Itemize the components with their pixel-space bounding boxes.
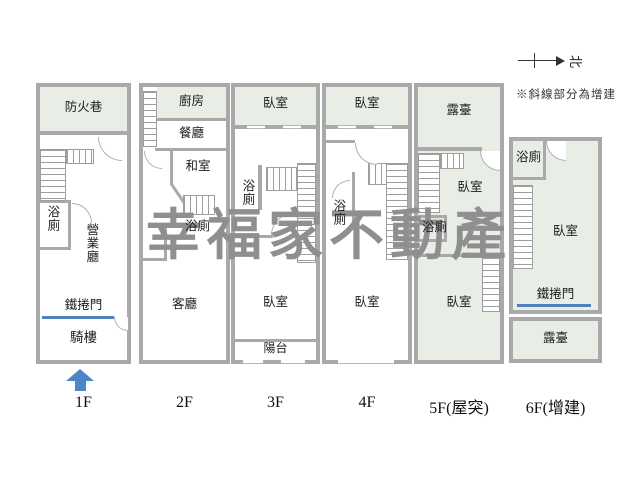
floor-label-1f: 1F [36,394,131,412]
room-label-terrace-6f: 露臺 [513,331,598,345]
room-label-business-hall: 營業廳 [84,223,98,264]
floor-label-3f: 3F [231,394,320,412]
room-label-arcade: 騎樓 [40,330,127,346]
door-arc-icon [332,180,350,198]
stairs-icon [440,153,464,169]
room-label-bedroom-top-3f: 臥室 [235,96,316,110]
wall [326,140,355,143]
room-label-roller-door-6f: 鐵捲門 [513,287,598,301]
wall [68,200,71,250]
stairs-icon [266,167,297,191]
room-label-balcony: 陽台 [235,342,316,356]
room-label-bedroom-6f: 臥室 [533,224,598,238]
room-label-bath-4f: 浴廁 [331,199,345,226]
room-label-terrace-5f: 露臺 [418,103,500,117]
wall [155,148,226,151]
room-label-tatami: 和室 [170,159,226,173]
wall [543,141,546,179]
arrow-stem [75,381,86,391]
door-arc-icon [114,317,128,331]
floorplan-6f: 浴廁 臥室 鐵捲門 [509,137,602,314]
compass-line-icon [518,60,558,61]
wall [157,118,226,121]
room-label-kitchen: 廚房 [157,94,226,108]
balcony-opening [338,356,394,364]
addition-note: ※斜線部分為增建 [516,86,616,102]
sliding-door-gap [374,125,392,129]
room-label-roller-door-1f: 鐵捲門 [40,298,127,312]
door-arc-icon [72,203,92,223]
floor-plan-canvas: 北 ※斜線部分為增建 幸福家不動產 防火巷 浴廁 營業廳 鐵捲門 騎樓 廚房 餐… [0,0,640,480]
balcony-opening [281,356,305,364]
sliding-door-gap [247,125,265,129]
floor-label-2f: 2F [139,394,230,412]
north-arrow-icon [556,56,565,66]
north-label: 北 [567,55,586,68]
room-label-bedroom-5f: 臥室 [418,295,500,309]
agency-watermark: 幸福家不動產 [146,208,512,263]
door-arc-icon [355,143,377,165]
stairs-icon [40,149,66,201]
wall [40,247,70,250]
wall [513,177,546,180]
balcony-opening [243,356,263,364]
room-label-bath-2f: 浴廁 [185,219,210,233]
roller-shutter-line [42,316,114,319]
room-label-dining: 餐廳 [157,126,226,140]
door-arc-icon [480,151,500,171]
entrance-arrow-icon [66,369,94,391]
room-label-bedroom-top-5f: 臥室 [440,180,500,194]
sliding-door-gap [338,125,356,129]
floorplan-1f: 防火巷 浴廁 營業廳 鐵捲門 騎樓 [36,83,131,364]
wall [418,147,482,151]
arrow-head [66,369,94,381]
door-arc-icon [98,137,122,161]
room-label-living: 客廳 [143,297,226,311]
stairs-icon [143,91,157,147]
stairs-icon [513,185,533,269]
floor-label-4f: 4F [322,394,412,412]
room-label-bath-6f: 浴廁 [516,150,541,164]
door-arc-icon [546,141,566,161]
room-label-fire-lane: 防火巷 [40,100,127,114]
floor-label-6f: 6F(增建) [509,394,602,418]
door-arc-icon [144,151,162,169]
wall [40,131,127,135]
room-label-bath-1f: 浴廁 [45,205,59,232]
room-label-bedroom-4f: 臥室 [326,295,408,309]
room-label-bath-5f: 浴廁 [422,220,447,234]
compass: 北 [518,50,594,76]
roller-shutter-line [517,304,591,307]
floor-label-5f: 5F(屋突) [414,394,504,418]
room-label-bedroom-top-4f: 臥室 [326,96,408,110]
room-label-bath-3f: 浴廁 [240,179,254,206]
room-label-bedroom-3f: 臥室 [235,295,316,309]
floorplan-6f-terrace: 露臺 [509,317,602,363]
sliding-door-gap [283,125,301,129]
stairs-icon [66,149,94,164]
